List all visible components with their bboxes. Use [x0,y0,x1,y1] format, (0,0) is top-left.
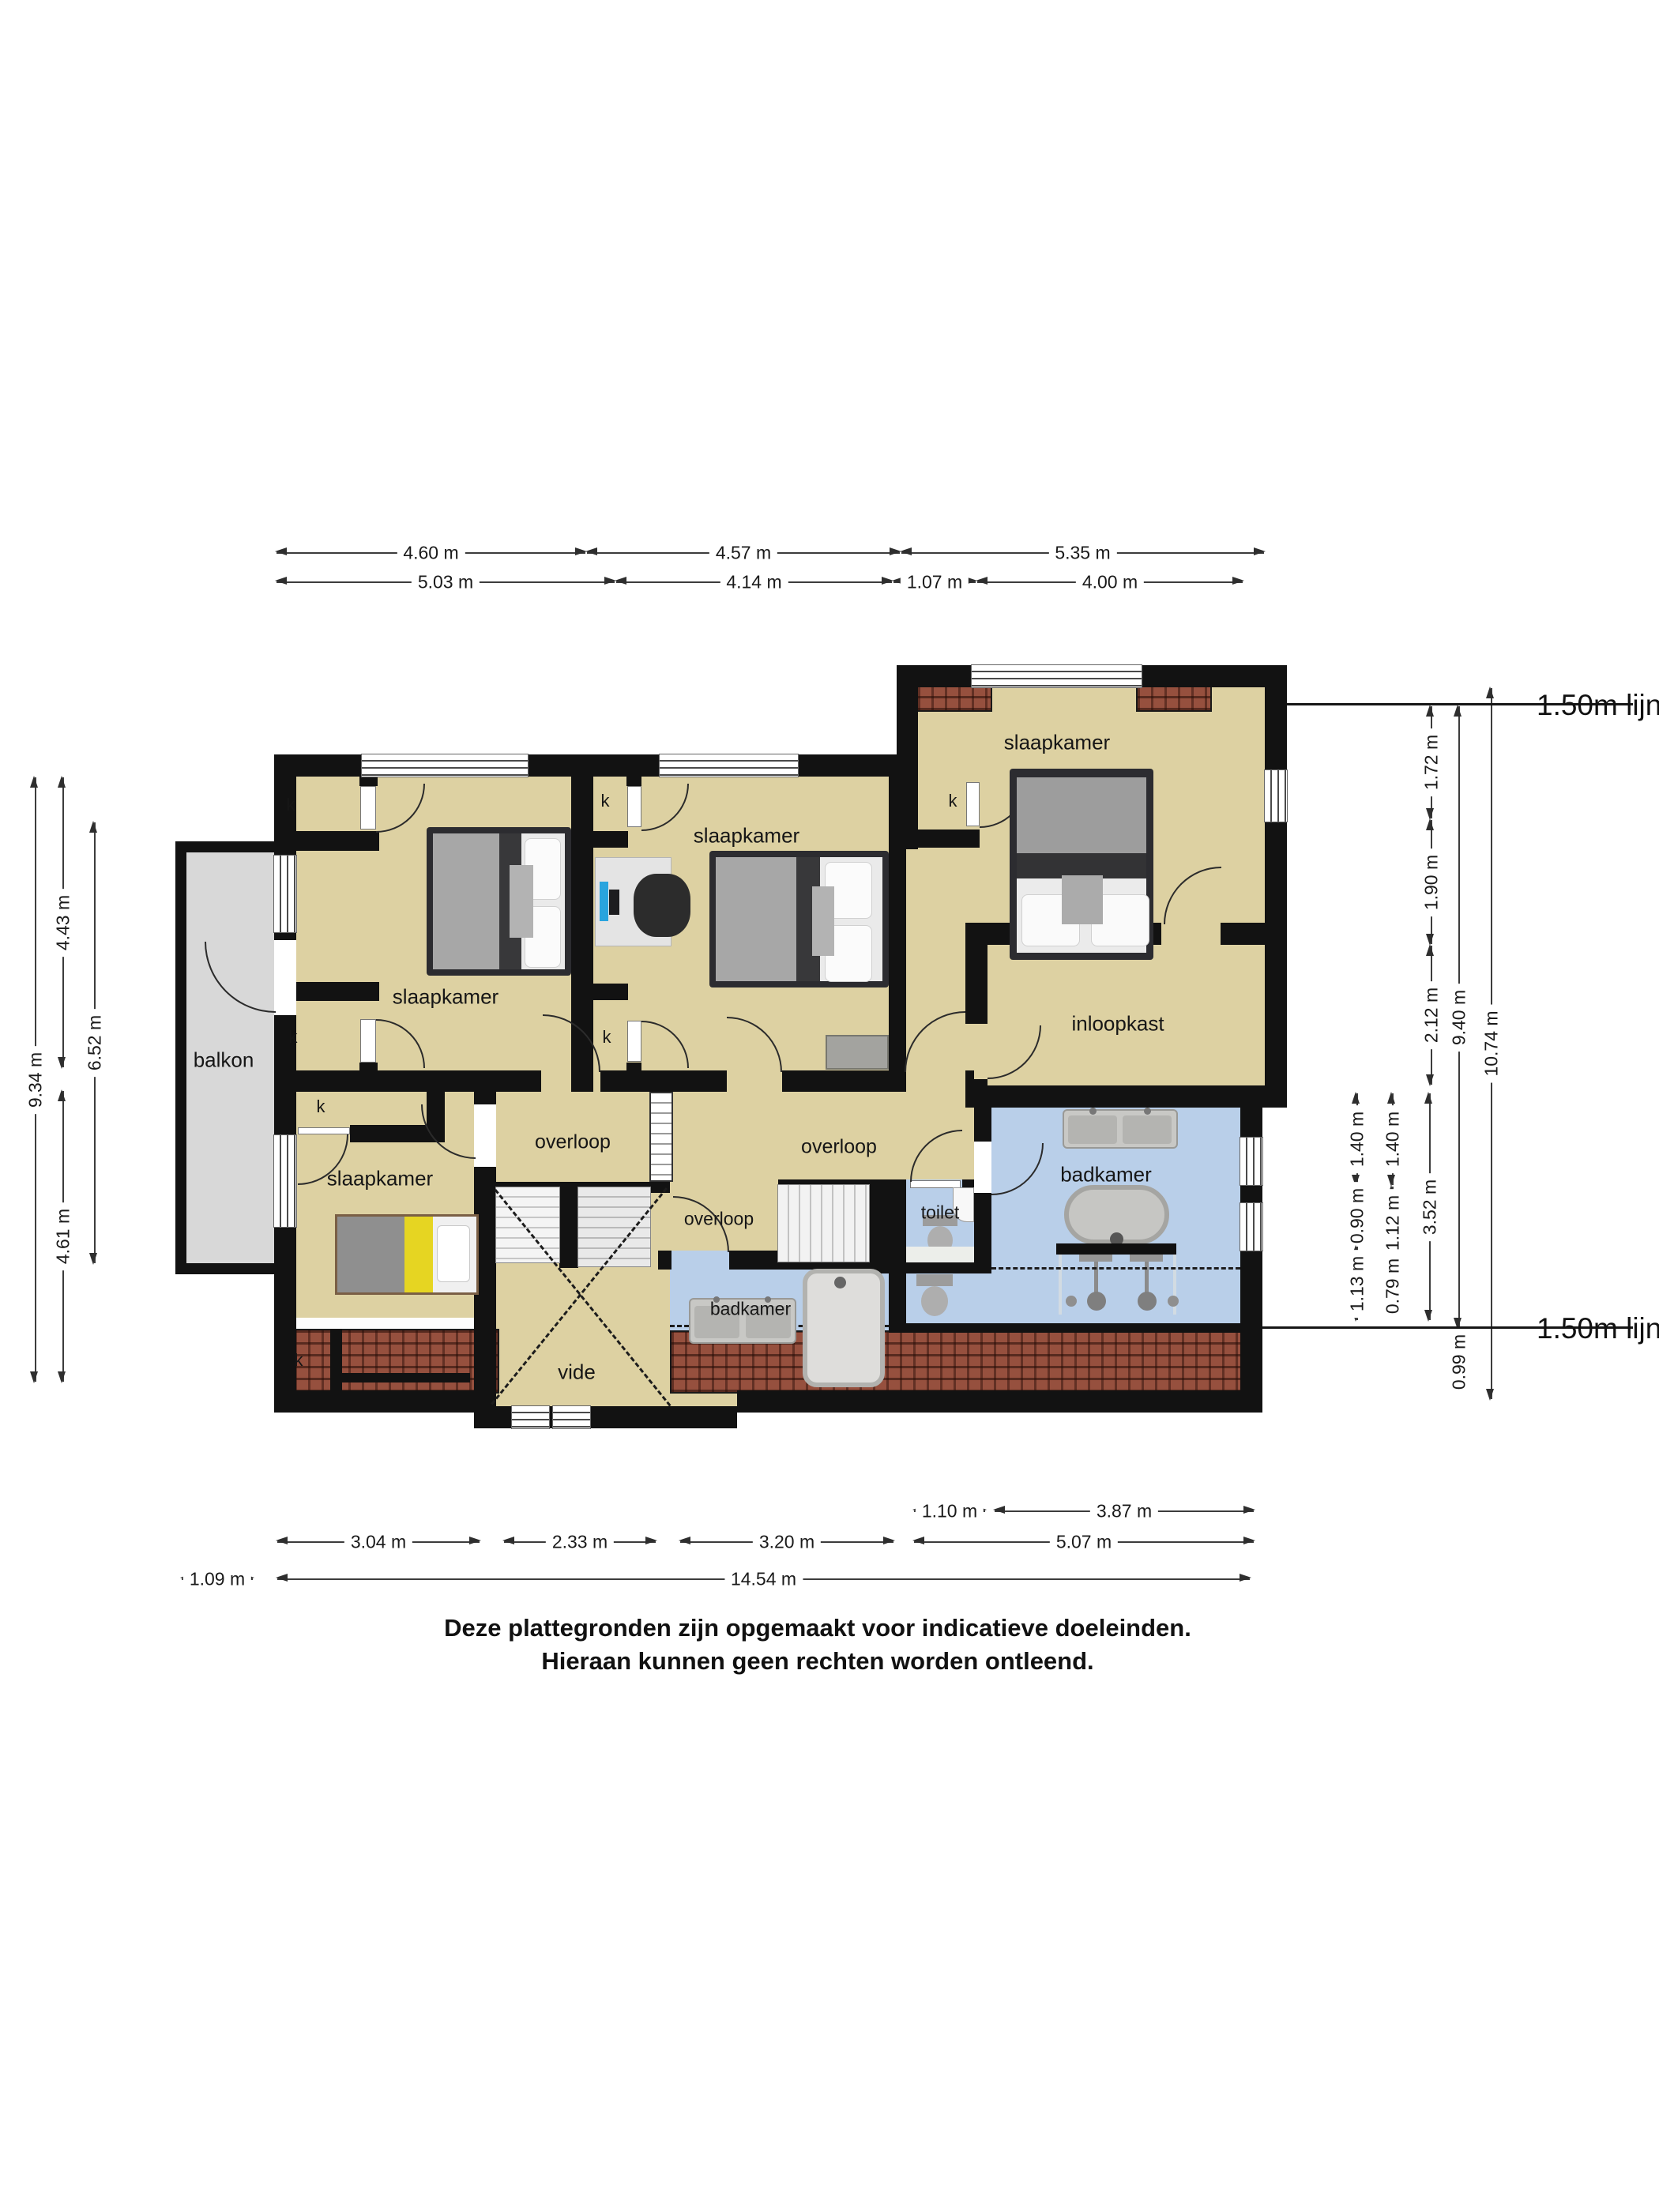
dimension-v: 9.40 m [1449,705,1469,1329]
dimension-h: 4.00 m [976,572,1243,592]
dimension-h: 4.57 m [586,543,901,563]
dimension-v: 0.79 m [1382,1260,1403,1312]
wall-bed3-left [897,687,918,849]
wall-toilet-bottom [889,1262,991,1273]
staircase-flight-left [496,1187,559,1262]
window-bed2-top [660,754,798,777]
wall-k4-stub [626,1063,641,1070]
window-bed4-left [274,1135,296,1227]
dimension-v: 10.74 m [1481,687,1502,1400]
door-k3-leaf [360,1019,376,1063]
wall-strip-closet-bottom [906,829,980,848]
room-label: inloopkast [1071,1012,1164,1036]
room-label: overloop [535,1131,611,1154]
wall-bottom-b [737,1390,1262,1413]
wall-toilet-left [889,1179,906,1329]
bed-middle-throw [812,886,834,956]
height-reference-label: 1.50m lijn [1537,689,1659,722]
room-label: balkon [194,1048,254,1073]
bathroom-faucet-2 [1144,1108,1151,1115]
wall-right-upper [1265,665,1287,1108]
floorplan-canvas: slaapkamerslaapkamerslaapkamerslaapkamer… [0,0,1659,2212]
bed-single-pillow [437,1225,470,1282]
footer-line-2: Hieraan kunnen geen rechten worden ontle… [158,1645,1477,1678]
wall-stairs-top-right [778,1179,869,1185]
window-bathroom-right-1 [1240,1138,1262,1185]
dimension-h: 5.03 m [276,572,615,592]
bed-right-throw [1062,875,1103,924]
room-label: toilet [921,1202,960,1224]
door-k4-leaf [627,1021,641,1062]
dimension-h: 3.20 m [679,1532,894,1552]
room-label: slaapkamer [694,824,799,848]
bed-right-mattress [1017,777,1146,853]
dimension-h: 5.07 m [913,1532,1255,1552]
dimension-v: 1.12 m [1382,1186,1403,1260]
dimension-v: 0.90 m [1347,1186,1367,1246]
dimension-v: 1.40 m [1382,1093,1403,1186]
window-balcony-1 [274,856,296,932]
wall-bottom-a [274,1390,496,1413]
bed-single-grey [337,1217,404,1292]
vide-railing [649,1092,673,1182]
room-label: slaapkamer [1004,731,1110,755]
shower-glass-1 [1059,1255,1062,1315]
shower-head-2 [1130,1255,1163,1262]
wall-smallbath-top-a [658,1251,671,1270]
bed-left-mattress [433,833,499,969]
door-k5-leaf [298,1127,350,1134]
bathroom-sink-basin-1 [1068,1115,1117,1144]
door-k6-leaf [966,782,980,826]
window-bathroom-right-2 [1240,1203,1262,1251]
closet-label: k [287,795,295,815]
room-label: badkamer [710,1299,791,1320]
footer-disclaimer: Deze plattegronden zijn opgemaakt voor i… [158,1612,1477,1678]
wall-stairs-right [869,1179,889,1273]
closet-label: k [289,1027,298,1048]
shower-dot-2 [1168,1296,1179,1307]
smallbath-tub-faucet [834,1277,846,1288]
wall-balcony-left [175,841,186,1274]
wall-bed4-right-a [474,1092,496,1104]
wall-k1-bottom [274,831,379,851]
desk-monitor-base [609,890,619,915]
dimension-v: 1.72 m [1421,705,1442,819]
dimension-v: 1.90 m [1421,819,1442,945]
wall-h1-a [274,1070,541,1092]
dimension-h: 2.33 m [503,1532,656,1552]
shower-knob-1 [1087,1292,1106,1311]
dimension-v: 3.52 m [1420,1093,1440,1321]
shower-head-1 [1079,1255,1112,1262]
room-label: vide [558,1360,596,1385]
dimension-h: 4.60 m [276,543,586,563]
dimension-h: 3.04 m [276,1532,480,1552]
dimension-h: 5.35 m [901,543,1265,563]
height-line-bathroom [991,1267,1240,1270]
dimension-h: 1.09 m [181,1569,254,1589]
dimension-v: 4.61 m [53,1090,73,1382]
bed-left-throw [510,865,533,938]
wall-bathroom-left-b [974,1193,991,1266]
closet-label: k [603,1027,611,1048]
hatch-divider-v [330,1329,342,1390]
dimension-h: 3.87 m [994,1501,1255,1522]
door-k2-leaf [627,786,641,827]
toilet-cabinet [906,1247,974,1262]
closet-label: k [295,1350,303,1371]
wall-k4-top [593,984,628,1000]
wall-inloopkast-bottom [965,1085,1287,1108]
bed-single-yellow [404,1217,433,1292]
wall-balcony-top [175,841,278,852]
height-reference-label: 1.50m lijn [1537,1312,1659,1345]
wall-h1-c [782,1070,903,1092]
bathroom-faucet-1 [1089,1108,1097,1115]
window-bed3-top [972,665,1142,687]
wall-k3-stub [359,1063,378,1070]
window-bed3-right [1265,770,1287,822]
door-bathroom-gap [974,1142,991,1193]
wall-k2-stub [626,777,641,786]
shower-stem-1 [1094,1262,1098,1293]
dimension-h: 1.07 m [893,572,976,592]
room-label: badkamer [1060,1163,1152,1187]
hatch-divider-h [342,1373,470,1382]
dimension-v: 2.12 m [1421,945,1442,1085]
wall-stairs-divider [559,1183,578,1268]
wall-k2-bottom [593,831,628,848]
room-label: slaapkamer [393,985,498,1010]
bathroom-sink-basin-2 [1123,1115,1172,1144]
closet-label: k [317,1097,325,1117]
dimension-v: 6.52 m [85,822,105,1264]
dimension-v: 1.40 m [1347,1093,1367,1186]
footer-line-1: Deze plattegronden zijn opgemaakt voor i… [158,1612,1477,1645]
window-vide-bottom-1 [512,1406,549,1428]
window-vide-bottom-2 [553,1406,590,1428]
dimension-h: 1.10 m [913,1501,986,1522]
door-bed4-gap [474,1104,496,1167]
door-balcony-gap [274,940,296,1015]
room-label: overloop [684,1209,754,1230]
dimension-v: 4.43 m [53,777,73,1068]
dimension-v: 1.13 m [1347,1246,1367,1321]
closet-label: k [601,791,610,811]
door-k1-leaf [360,786,376,829]
dresser-middle [826,1035,889,1070]
bed-middle-mattress [716,857,796,981]
dimension-v: 0.99 m [1449,1329,1469,1394]
closet-label: k [949,791,957,811]
wall-bathroom-left-a [974,1108,991,1142]
dimension-v: 9.34 m [25,777,46,1382]
window-bed1-top [362,754,528,777]
toilet-2-tank [916,1274,953,1286]
shower-stem-2 [1145,1262,1149,1293]
staircase-lower [778,1185,869,1262]
wall-balcony-bottom [175,1263,278,1274]
roof-hatch-bottomleft [293,1329,499,1394]
desk-monitor [600,882,608,921]
dimension-h: 4.14 m [615,572,893,592]
toilet-2-bowl [921,1286,948,1316]
wall-h1-b [600,1070,727,1092]
wall-k1-stub [359,777,378,786]
room-label: slaapkamer [327,1167,433,1191]
desk-chair [634,874,690,937]
room-label: overloop [801,1136,877,1159]
shower-dot-1 [1066,1296,1077,1307]
shower-bar [1056,1243,1176,1255]
wall-bathroom-bottom [889,1323,1240,1333]
dimension-h: 14.54 m [276,1569,1251,1589]
roof-hatch-topright [1136,686,1212,712]
roof-hatch-topleft [916,686,992,712]
wall-bed3-inloopkast-b [1221,923,1265,945]
shower-knob-2 [1138,1292,1157,1311]
